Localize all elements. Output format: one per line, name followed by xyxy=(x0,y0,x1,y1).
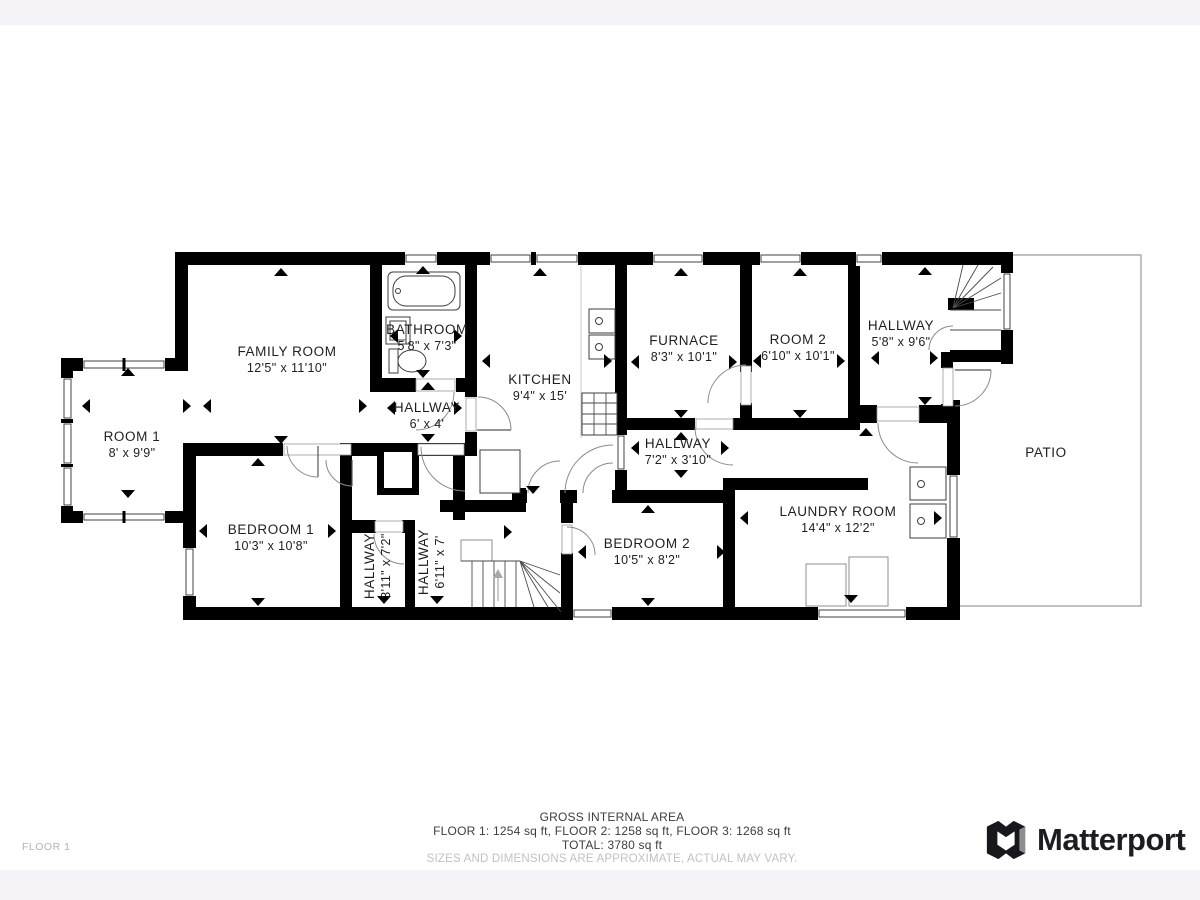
room-dims-hallway-stairs: 5'8" x 9'6" xyxy=(871,335,930,349)
kitchen-radiator-grid xyxy=(582,393,617,435)
matterport-brand: Matterport xyxy=(984,818,1185,862)
room-dims-bedroom2: 10'5" x 8'2" xyxy=(614,553,680,567)
patio-outline xyxy=(958,255,1141,606)
room-label-laundry: LAUNDRY ROOM xyxy=(780,504,897,519)
room-dims-bathroom: 5'8" x 7'3" xyxy=(397,339,456,353)
room-label-room2: ROOM 2 xyxy=(770,332,827,347)
kitchen-cabinet xyxy=(480,450,520,493)
bathtub xyxy=(388,272,460,310)
laundry-furniture xyxy=(806,557,888,606)
room-dims-family-room: 12'5" x 11'10" xyxy=(247,361,327,375)
room-dims-laundry: 14'4" x 12'2" xyxy=(801,521,875,535)
washer-dryer xyxy=(910,467,946,538)
matterport-wordmark: Matterport xyxy=(1037,822,1185,858)
room-label-bathroom: BATHROOM xyxy=(386,322,468,337)
room-label-furnace: FURNACE xyxy=(649,333,718,348)
room-label-bedroom1: BEDROOM 1 xyxy=(228,522,314,537)
room-label-bedroom2: BEDROOM 2 xyxy=(604,536,690,551)
room-label-hallway-b1: HALLWAY xyxy=(362,533,377,599)
room-label-hallway-stairs: HALLWAY xyxy=(868,318,934,333)
floor-number-label: FLOOR 1 xyxy=(22,841,70,853)
room-dims-kitchen: 9'4" x 15' xyxy=(513,389,567,403)
room-label-hallway-top: HALLWAY xyxy=(394,400,460,415)
room-dims-hallway-top: 6' x 4' xyxy=(410,417,445,431)
room-dims-hallway-b2: 6'11" x 7' xyxy=(433,535,447,588)
room-dims-furnace: 8'3" x 10'1" xyxy=(651,350,717,364)
stairs-upper xyxy=(950,265,1001,330)
room-label-family-room: FAMILY ROOM xyxy=(237,344,336,359)
stairs-lower xyxy=(461,540,561,612)
room-label-patio: PATIO xyxy=(1025,445,1067,460)
room-label-kitchen: KITCHEN xyxy=(508,372,571,387)
room-label-hallway-b2: HALLWAY xyxy=(416,529,431,595)
room-dims-bedroom1: 10'3" x 10'8" xyxy=(234,539,308,553)
floorplan-page: FAMILY ROOM 12'5" x 11'10" ROOM 1 8' x 9… xyxy=(0,0,1200,900)
room-dims-hallway-b1: 3'11" x 7'2" xyxy=(379,533,393,598)
room-dims-room1: 8' x 9'9" xyxy=(109,446,156,460)
matterport-logo-icon xyxy=(984,818,1028,862)
floor-plan-canvas: FAMILY ROOM 12'5" x 11'10" ROOM 1 8' x 9… xyxy=(0,0,1200,900)
room-label-room1: ROOM 1 xyxy=(104,429,161,444)
room-label-hallway-mid: HALLWAY xyxy=(645,436,711,451)
stove xyxy=(589,309,615,359)
measure-arrows xyxy=(82,266,942,606)
room-dims-hallway-mid: 7'2" x 3'10" xyxy=(645,453,711,467)
room-dims-room2: 6'10" x 10'1" xyxy=(761,349,835,363)
